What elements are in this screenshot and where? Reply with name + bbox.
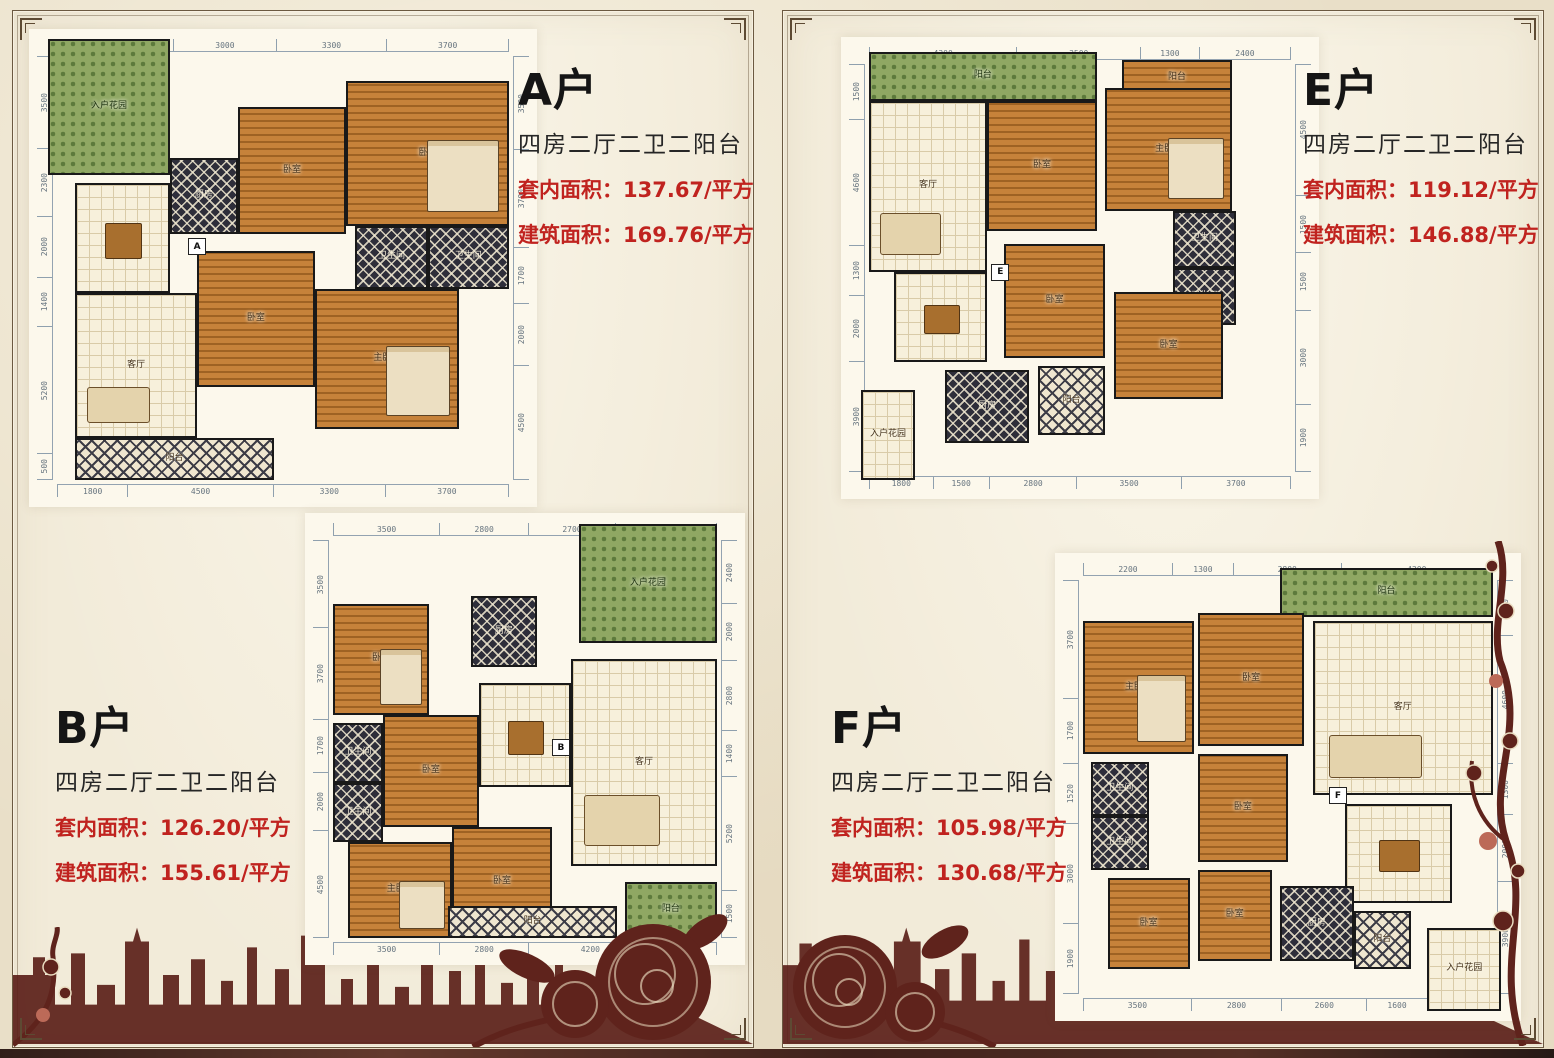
building-area-value: 169.76/平方 xyxy=(623,223,754,247)
building-area-label: 建筑面积： xyxy=(831,861,936,885)
inner-area-label: 套内面积： xyxy=(831,816,936,840)
inner-area-value: 137.67/平方 xyxy=(623,178,754,202)
room-balcony: 阳台 xyxy=(625,882,717,938)
room-dining: 餐厅 xyxy=(1345,804,1452,903)
frame-corner-ornament xyxy=(790,1018,812,1040)
unit-marker: B xyxy=(552,739,570,756)
frame-corner-ornament xyxy=(20,1018,42,1040)
building-area-label: 建筑面积： xyxy=(518,223,623,247)
unit-title: A户 xyxy=(518,69,758,113)
unit-title: B户 xyxy=(55,707,345,751)
unit-a-info: A户 四房二厅二卫二阳台 套内面积：137.67/平方 建筑面积：169.76/… xyxy=(518,69,758,249)
room-entry-garden: 入户花园 xyxy=(1427,928,1501,1011)
room-living: 客厅 xyxy=(571,659,717,866)
room-bathroom: 卫生间 xyxy=(428,226,509,290)
inner-area-label: 套内面积： xyxy=(55,816,160,840)
inner-area-line: 套内面积：105.98/平方 xyxy=(831,812,1121,842)
inner-area-value: 119.12/平方 xyxy=(1408,178,1539,202)
building-area-value: 155.61/平方 xyxy=(160,861,291,885)
frame-corner-ornament xyxy=(724,1018,746,1040)
room-dining: 餐厅 xyxy=(894,272,987,362)
room-kitchen: 厨房 xyxy=(1280,886,1354,961)
building-area-label: 建筑面积： xyxy=(55,861,160,885)
room-entry-garden: 入户花园 xyxy=(579,524,717,643)
room-kitchen: 厨房 xyxy=(471,596,536,668)
floorplan-f: 阳台 主卧室 卧室 客厅 卫生间 卫生间 卧室 餐厅 卧室 卧室 厨房 阳台 入… xyxy=(1083,580,1493,994)
room-balcony: 阳台 xyxy=(448,906,617,938)
room-entry-garden: 入户花园 xyxy=(861,390,916,480)
frame-corner-ornament xyxy=(790,18,812,40)
dims-bottom: 18001500280035003700 xyxy=(869,476,1291,489)
inner-area-label: 套内面积： xyxy=(1303,178,1408,202)
room-bedroom: 卧室 xyxy=(1198,870,1272,961)
room-bedroom: 卧室 xyxy=(383,715,479,826)
floorplan-e-sheet: 4300350013002400 15004600130020003900 阳台… xyxy=(841,37,1319,499)
frame-corner-ornament xyxy=(1514,18,1536,40)
floorplan-a-sheet: 3500300033003700 35002300200014005200500… xyxy=(29,29,537,507)
room-bedroom: 卧室 xyxy=(333,604,429,715)
room-bathroom: 卫生间 xyxy=(1173,211,1236,268)
unit-b-info: B户 四房二厅二卫二阳台 套内面积：126.20/平方 建筑面积：155.61/… xyxy=(55,707,345,887)
building-area-label: 建筑面积： xyxy=(1303,223,1408,247)
floorplan-e: 阳台 阳台 客厅 卧室 主卧室 卫生间 卫生间 餐厅 卧室 卧室 厨房 阳台 入… xyxy=(869,64,1291,472)
room-kitchen: 厨房 xyxy=(945,370,1029,443)
dims-bottom: 1800450033003700 xyxy=(57,484,509,497)
room-bedroom: 卧室 xyxy=(1004,244,1105,358)
floorplan-a: 入户花园 卧室 卧室 厨房 餐厅 卫生间 卫生间 客厅 卧室 主卧室 阳台 A xyxy=(57,56,509,480)
room-master-bedroom: 主卧室 xyxy=(315,289,460,429)
unit-marker: E xyxy=(991,264,1009,281)
room-living: 客厅 xyxy=(1313,621,1493,795)
frame-corner-ornament xyxy=(724,18,746,40)
room-living: 客厅 xyxy=(75,293,197,437)
floorplan-b: 卧室 厨房 入户花园 餐厅 卫生间 卫生间 卧室 主卧室 卧室 客厅 阳台 阳台… xyxy=(333,540,717,938)
unit-title: E户 xyxy=(1303,69,1538,113)
unit-e-info: E户 四房二厅二卫二阳台 套内面积：119.12/平方 建筑面积：146.88/… xyxy=(1303,69,1538,249)
room-master-bedroom: 主卧室 xyxy=(348,842,452,938)
room-dining: 餐厅 xyxy=(75,183,170,293)
room-bedroom: 卧室 xyxy=(346,81,509,225)
building-area-line: 建筑面积：155.61/平方 xyxy=(55,857,345,887)
inner-area-line: 套内面积：119.12/平方 xyxy=(1303,174,1538,204)
room-bathroom: 卫生间 xyxy=(355,226,427,290)
room-bedroom: 卧室 xyxy=(238,107,346,234)
frame-corner-ornament xyxy=(1514,1018,1536,1040)
unit-title: F户 xyxy=(831,707,1121,751)
room-bedroom: 卧室 xyxy=(1108,878,1190,969)
right-brochure-panel: 4300350013002400 15004600130020003900 阳台… xyxy=(782,10,1544,1048)
unit-f-info: F户 四房二厅二卫二阳台 套内面积：105.98/平方 建筑面积：130.68/… xyxy=(831,707,1121,887)
building-area-value: 146.88/平方 xyxy=(1408,223,1539,247)
photo-edge-strip xyxy=(0,1049,1554,1058)
building-area-line: 建筑面积：130.68/平方 xyxy=(831,857,1121,887)
inner-area-line: 套内面积：137.67/平方 xyxy=(518,174,758,204)
floorplan-b-sheet: 3500280027003300 35003700170020004500 卧室… xyxy=(305,513,745,965)
dims-bottom: 3500280042001800 xyxy=(333,942,717,955)
room-bedroom: 卧室 xyxy=(197,251,315,387)
room-bedroom: 卧室 xyxy=(1198,613,1305,745)
frame-corner-ornament xyxy=(20,18,42,40)
room-living: 客厅 xyxy=(869,101,987,272)
dims-right: 240020002800140052001500 xyxy=(721,540,737,938)
room-bedroom: 卧室 xyxy=(1114,292,1224,398)
room-bedroom: 卧室 xyxy=(987,101,1097,232)
room-balcony: 阳台 xyxy=(1354,911,1411,969)
inner-area-value: 126.20/平方 xyxy=(160,816,291,840)
building-area-line: 建筑面积：169.76/平方 xyxy=(518,219,758,249)
inner-area-value: 105.98/平方 xyxy=(936,816,1067,840)
room-dining: 餐厅 xyxy=(479,683,571,786)
inner-area-line: 套内面积：126.20/平方 xyxy=(55,812,345,842)
room-balcony: 阳台 xyxy=(75,438,274,480)
building-area-line: 建筑面积：146.88/平方 xyxy=(1303,219,1538,249)
unit-subtitle: 四房二厅二卫二阳台 xyxy=(55,763,345,797)
building-area-value: 130.68/平方 xyxy=(936,861,1067,885)
unit-marker: F xyxy=(1329,787,1347,804)
room-balcony-garden: 阳台 xyxy=(1280,568,1493,618)
room-balcony-garden: 阳台 xyxy=(869,52,1097,101)
room-master-bedroom: 主卧室 xyxy=(1105,88,1232,210)
unit-subtitle: 四房二厅二卫二阳台 xyxy=(1303,125,1538,159)
inner-area-label: 套内面积： xyxy=(518,178,623,202)
floorplan-f-sheet: 2200130028004200 37001700152030001900 阳台… xyxy=(1055,553,1521,1021)
room-bedroom: 卧室 xyxy=(1198,754,1288,862)
unit-marker: A xyxy=(188,238,206,255)
room-kitchen: 厨房 xyxy=(170,158,238,234)
unit-subtitle: 四房二厅二卫二阳台 xyxy=(518,125,758,159)
left-brochure-panel: 3500300033003700 35002300200014005200500… xyxy=(12,10,754,1048)
room-balcony: 阳台 xyxy=(1038,366,1106,435)
unit-subtitle: 四房二厅二卫二阳台 xyxy=(831,763,1121,797)
room-entry-garden: 入户花园 xyxy=(48,39,170,175)
